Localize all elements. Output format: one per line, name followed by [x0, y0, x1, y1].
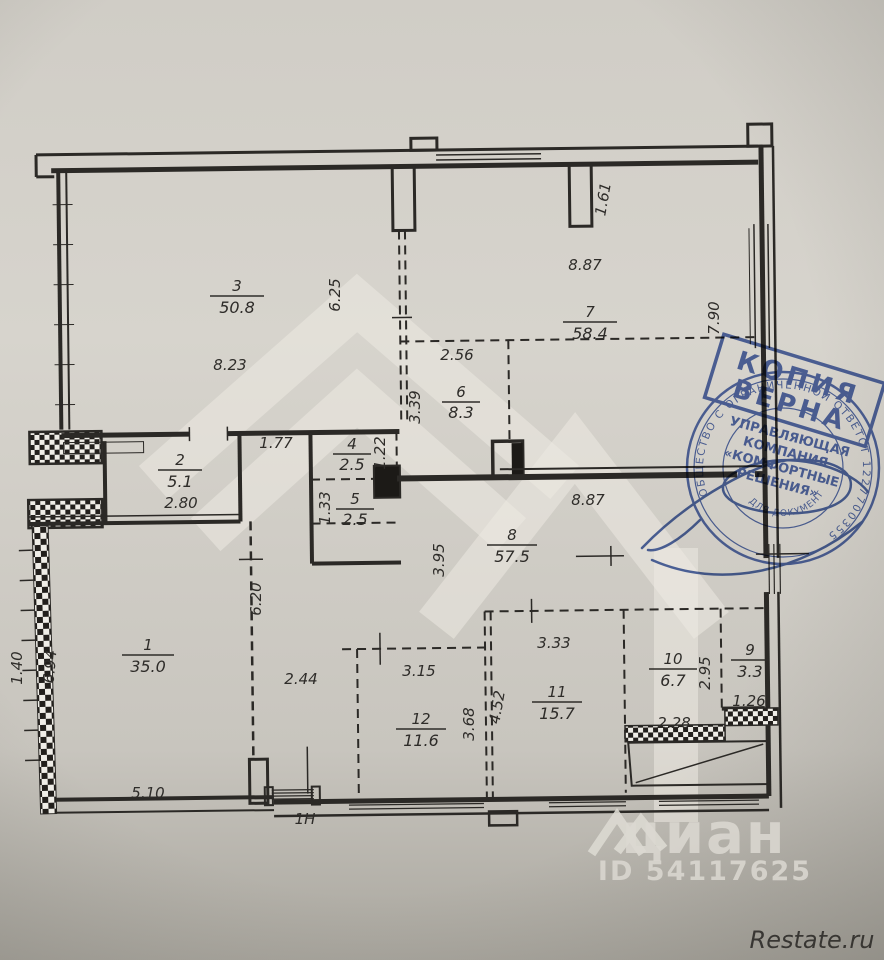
listing-id: ID 54117625: [598, 856, 812, 887]
svg-text:4: 4: [347, 435, 357, 453]
dim-room10-h: 2.95: [696, 656, 714, 689]
svg-text:57.5: 57.5: [494, 547, 530, 566]
dim-room12-h: 3.68: [460, 707, 478, 740]
dim-hall-h: 3.95: [430, 543, 448, 576]
floor-plan-canvas: 3 50.8 7 58.4 2 5.1 4 2.5 5 2.5: [0, 0, 884, 960]
dim-closet-w: 1.77: [259, 434, 293, 452]
dim-room1-w: 5.10: [131, 784, 164, 802]
svg-text:2.5: 2.5: [339, 455, 364, 474]
dim-closet-h: 1.22: [371, 436, 389, 469]
svg-text:15.7: 15.7: [539, 704, 575, 723]
svg-text:6: 6: [456, 383, 466, 401]
svg-text:58.4: 58.4: [572, 324, 608, 343]
svg-text:3: 3: [232, 277, 242, 295]
svg-text:8: 8: [507, 526, 517, 544]
dim-room6-h: 3.39: [406, 390, 424, 423]
dim-room3-w: 8.23: [213, 356, 246, 374]
svg-text:2.5: 2.5: [342, 510, 367, 529]
svg-text:7: 7: [585, 303, 595, 321]
dim-hall-w: 8.87: [571, 491, 605, 509]
dim-hall-gap: 2.44: [284, 670, 317, 688]
svg-text:11.6: 11.6: [403, 731, 439, 750]
dim-room2-w: 2.80: [164, 494, 197, 512]
svg-text:8.3: 8.3: [448, 403, 473, 422]
dim-room7-w: 8.87: [568, 256, 602, 274]
svg-text:11: 11: [547, 683, 566, 701]
svg-text:2: 2: [175, 451, 185, 469]
dim-room9-w: 1.26: [732, 692, 765, 710]
dim-room1-h: 6.94: [40, 649, 61, 684]
dim-room10-w: 2.28: [657, 714, 690, 732]
dim-hall-left-h: 6.20: [247, 582, 265, 615]
svg-text:6.7: 6.7: [660, 671, 686, 690]
dim-left-edge: 1.40: [8, 651, 26, 684]
svg-text:5.1: 5.1: [167, 472, 192, 491]
dim-room3-h: 6.25: [326, 278, 344, 311]
restate-watermark: Restate.ru: [750, 926, 875, 954]
dim-room12-w: 3.15: [402, 662, 435, 680]
dim-room6-w: 2.56: [440, 346, 473, 364]
svg-text:5: 5: [350, 490, 360, 508]
svg-text:35.0: 35.0: [130, 657, 166, 676]
dim-room7-h: 7.90: [705, 301, 723, 334]
svg-text:12: 12: [411, 710, 430, 728]
dim-closet2-h: 1.33: [316, 491, 334, 524]
svg-text:3.3: 3.3: [737, 662, 762, 681]
svg-text:1: 1: [143, 636, 153, 654]
cian-watermark: циан ID 54117625: [594, 802, 812, 887]
floor-plan-photo: 3 50.8 7 58.4 2 5.1 4 2.5 5 2.5: [0, 0, 884, 960]
unit-label: 1Н: [295, 810, 316, 828]
svg-text:10: 10: [663, 650, 682, 668]
dim-room11-w: 3.33: [537, 634, 570, 652]
svg-text:9: 9: [745, 641, 755, 659]
svg-text:50.8: 50.8: [219, 298, 255, 317]
